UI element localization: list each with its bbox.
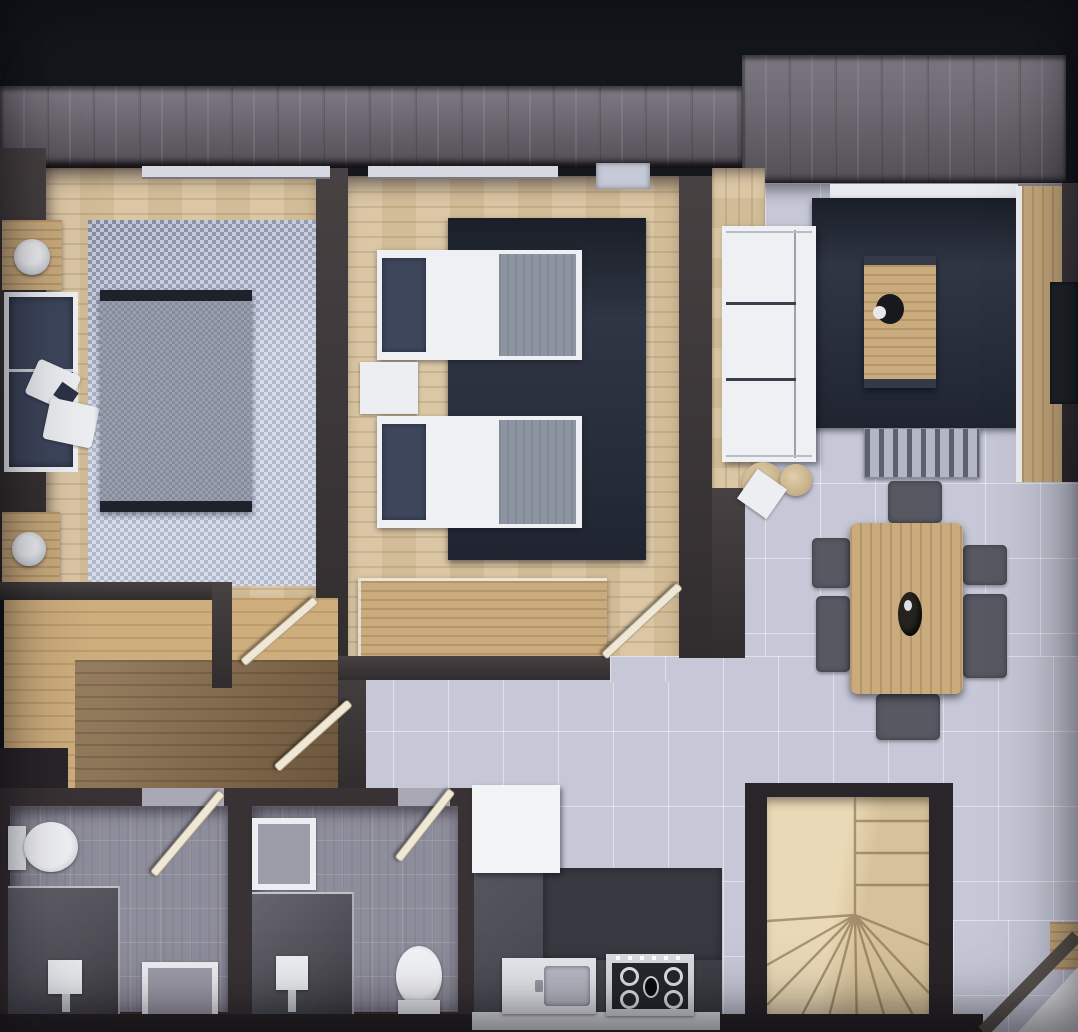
cooktop [612,963,688,1009]
stair-treads [767,797,929,1032]
bedroom2-bed-1 [377,250,582,360]
coffee-table [864,256,936,388]
kitchen-stove [606,954,694,1016]
dining-table-vase-glint [904,600,912,611]
sofa-armrest-seam-top [726,231,812,233]
toilet1-bowl [24,822,78,872]
burner-3 [620,990,639,1009]
sink-faucet [535,980,543,992]
dining-chair-left-1 [812,538,850,588]
bedroom2-nightstand [360,362,418,414]
bathroom1-washbasin [48,960,82,994]
hallway-wall-stub [212,582,232,688]
hallway-corner-wall [0,748,68,792]
dining-chair-top [888,481,942,523]
top-wall-band-right [742,55,1066,186]
stair-left-wall [745,783,767,1032]
top-wall-band-left [0,86,742,168]
coffee-table-decor-white [873,306,886,319]
toilet2-bowl [396,946,442,1006]
dining-chair-right-2 [963,594,1007,678]
kitchen-tall-cabinet [472,785,560,873]
kitchen-counter-dark [543,868,722,960]
bed1-blanket [499,254,576,356]
dining-table-vase [898,592,922,636]
bedroom1-window [142,166,330,179]
wall-panel-tv [1050,282,1078,404]
bedroom2-window [368,166,558,179]
bedroom1-ottoman-bottom [12,532,46,566]
living-corner-wall [712,488,745,658]
stove-knobs [616,956,684,960]
bedroom2-east-wall [679,176,712,658]
coffee-table-dark-end-top [864,256,936,265]
coffee-table-dark-end-bottom [864,379,936,388]
sofa [722,226,816,462]
stair-right-wall [929,783,953,1032]
sofa-armrest-seam-bottom [726,455,812,457]
hallway-floor-shadow [75,660,338,792]
dining-chair-bottom [876,694,940,740]
dining-chair-left-2 [816,596,850,672]
kitchen-sink-unit [502,958,596,1014]
staircase [745,783,953,1032]
bedroom2-dresser [358,578,607,659]
sofa-backrest-seam [794,230,796,458]
bed-footboard [100,501,252,512]
floorplan-scene [0,0,1078,1032]
bathroom2-shower [252,892,354,1014]
stair-tread-lines [767,797,929,1032]
bed2-pillow [382,424,426,520]
burner-1 [620,967,639,986]
bathroom2-basin-stem [288,990,296,1012]
burner-center [643,976,659,998]
dining-chair-right-1 [963,545,1007,585]
bedroom1-bed [100,290,252,512]
burner-2 [664,967,683,986]
sink-basin [544,966,590,1006]
bathroom2-vanity [252,818,316,890]
stair-top-wall [745,783,953,797]
bedroom2-bed-2 [377,416,582,528]
bed1-pillow [382,258,426,352]
bed2-blanket [499,420,576,524]
balcony-door-gap [596,163,650,189]
media-bench [864,428,980,478]
bathroom1-basin-stem [62,994,70,1012]
sofa-cushion-seam-2 [726,378,796,381]
corner-bottom-wall [953,1014,983,1032]
sofa-cushion-seam-1 [726,302,796,305]
bedroom1-ottoman-top [14,239,50,275]
bedroom1-south-wall [0,582,232,600]
bed-headboard [100,290,252,301]
bathroom2-washbasin [276,956,308,990]
bedroom2-south-wall [338,656,610,680]
burner-4 [664,990,683,1009]
bedroom2-door-threshold [610,656,676,682]
corner-stairs-down [953,920,1078,1032]
